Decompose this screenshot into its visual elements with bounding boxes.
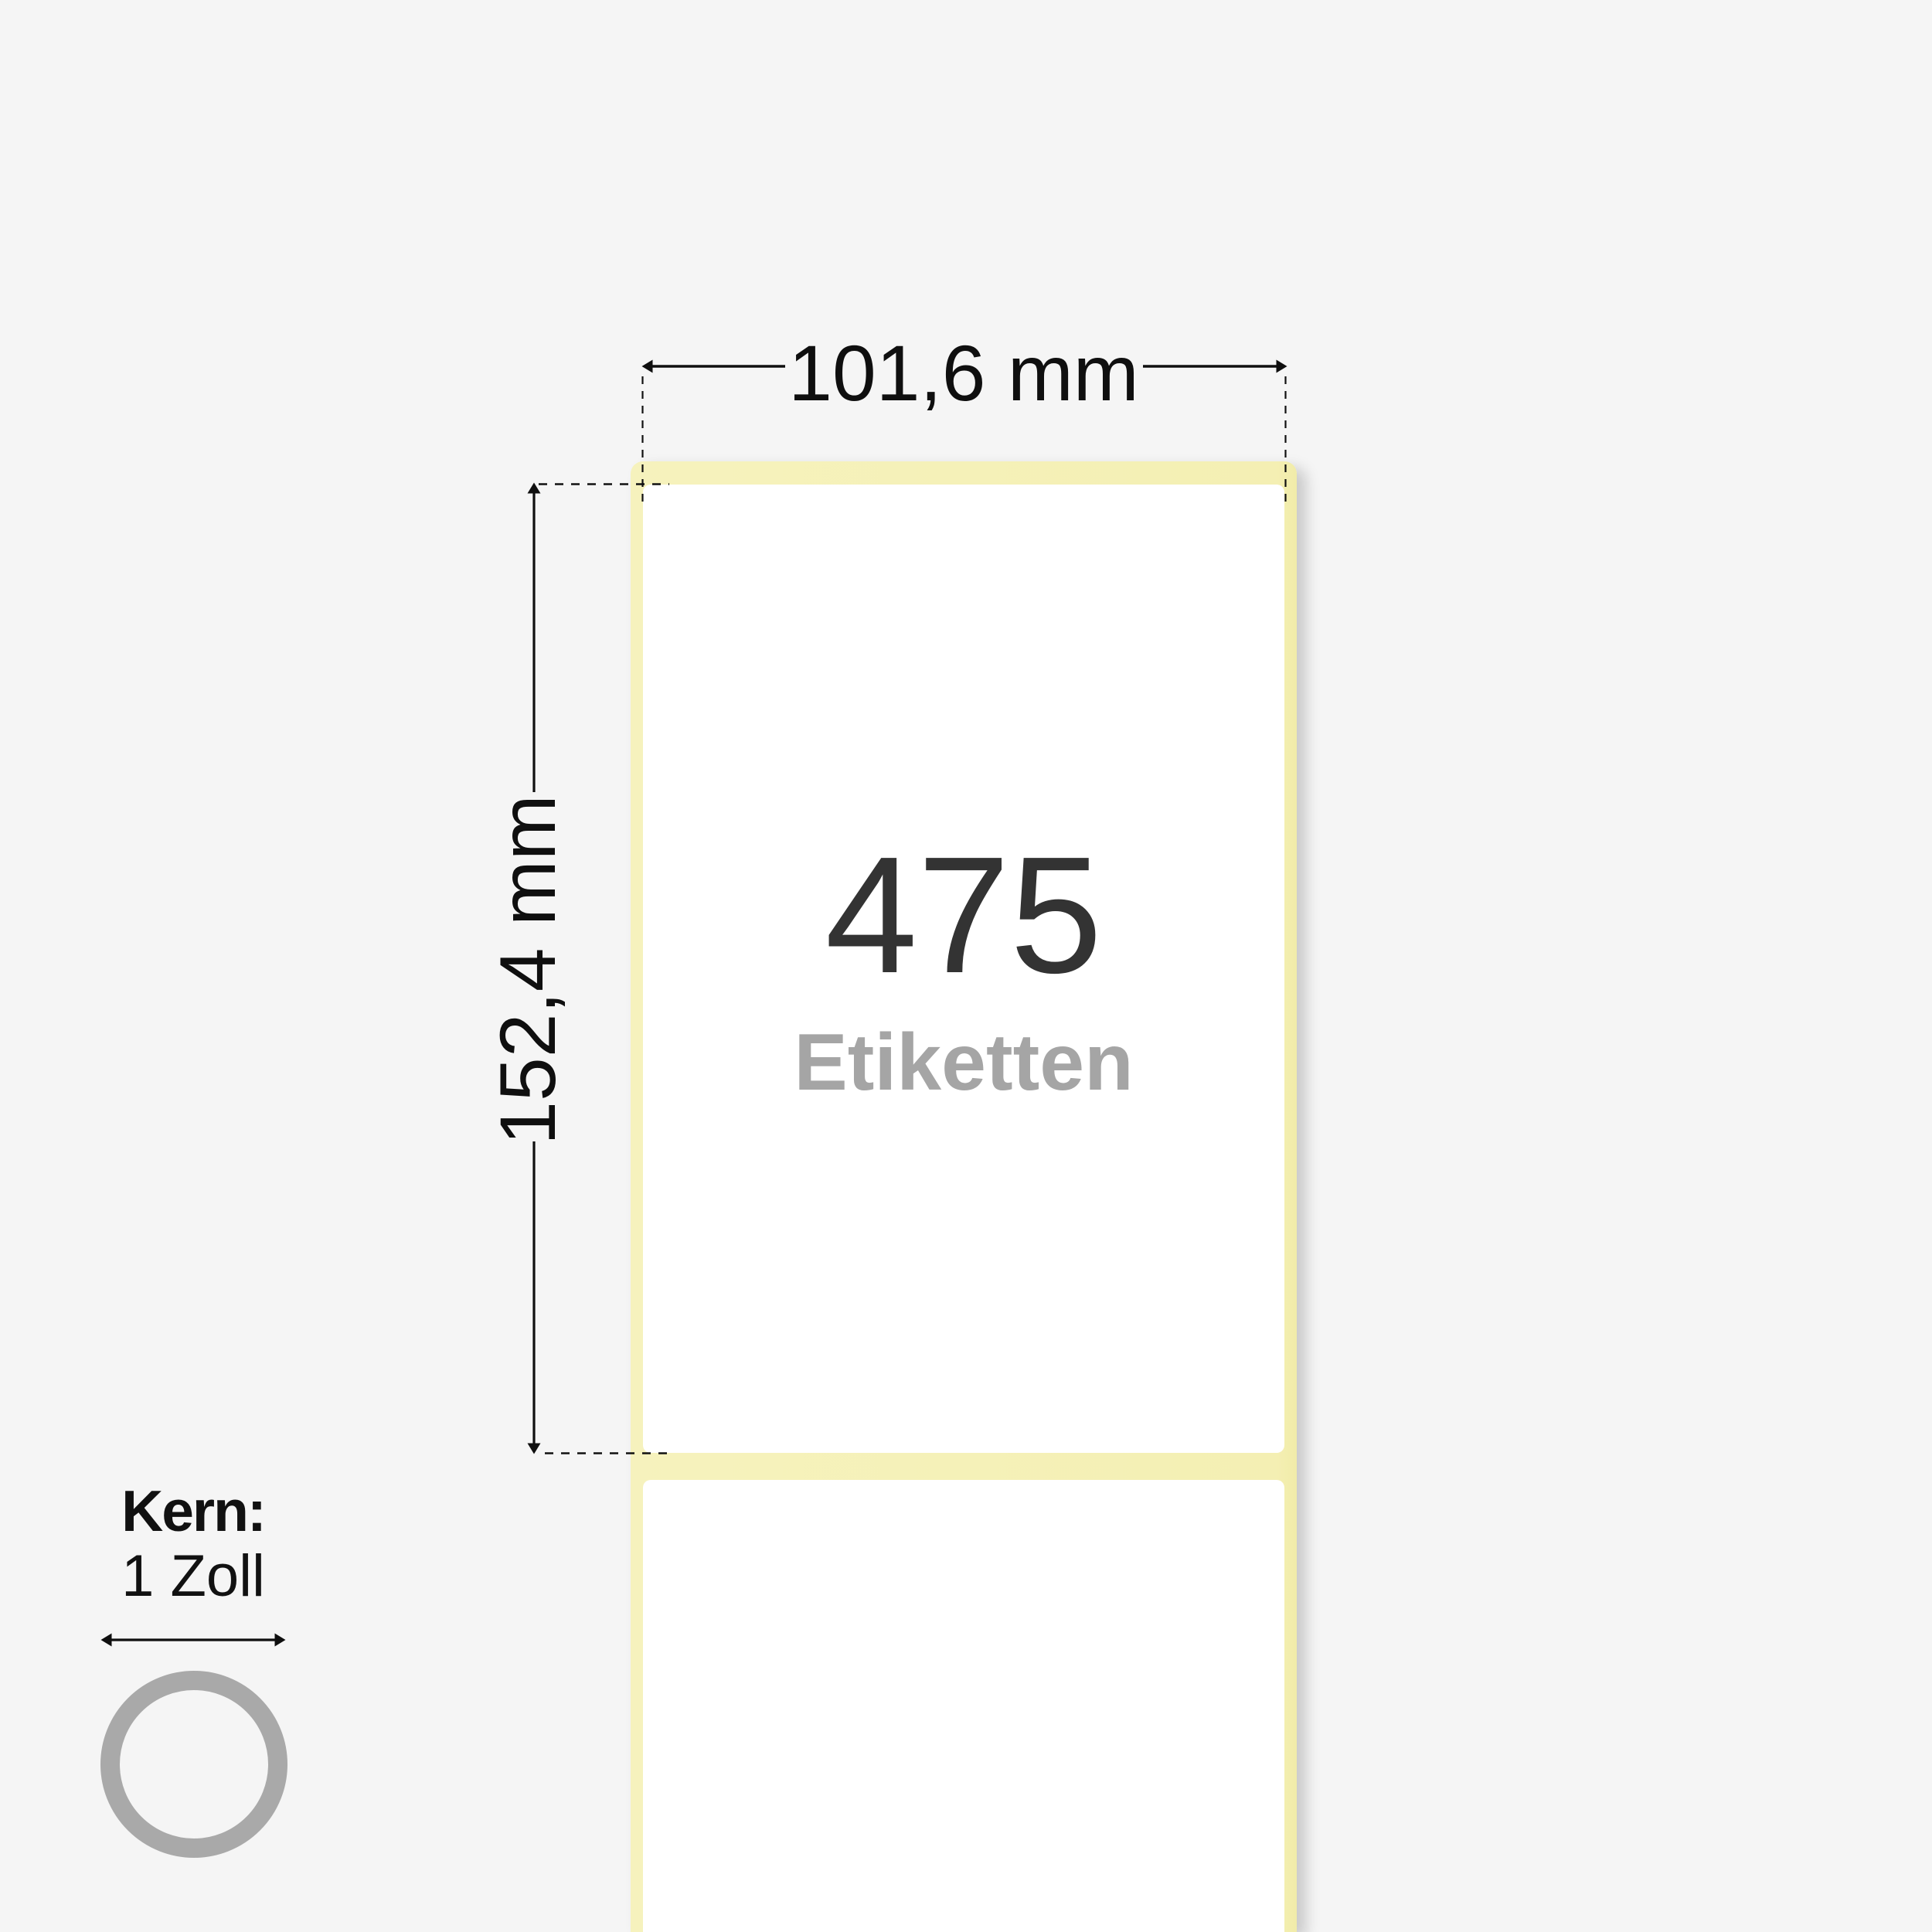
svg-text:152,4 mm: 152,4 mm — [484, 794, 572, 1145]
svg-text:Kern:: Kern: — [121, 1478, 265, 1543]
svg-text:1 Zoll: 1 Zoll — [121, 1543, 265, 1609]
svg-text:101,6 mm: 101,6 mm — [788, 329, 1139, 417]
